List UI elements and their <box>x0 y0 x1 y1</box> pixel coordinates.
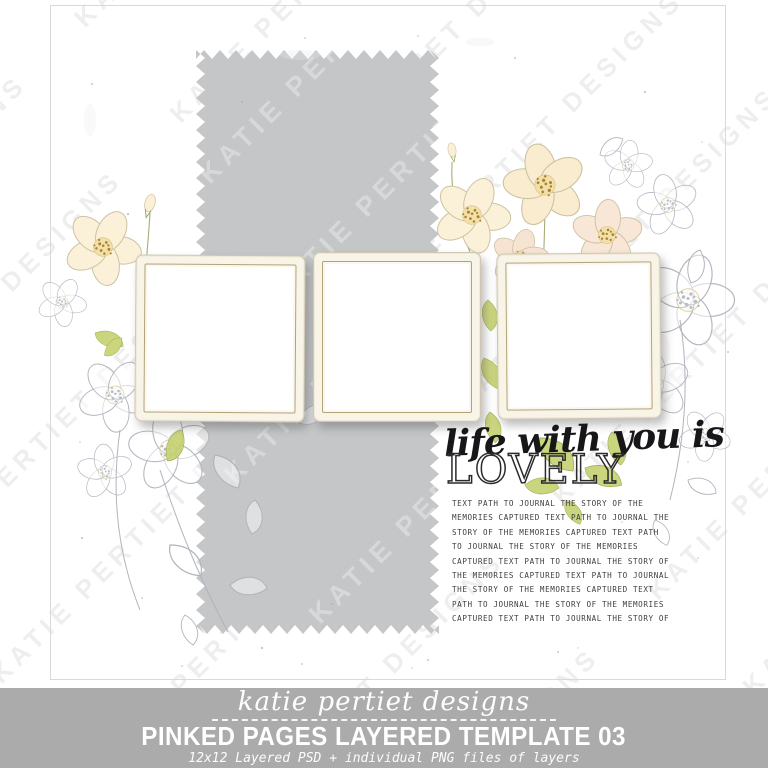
journal-line: TO JOURNAL THE STORY OF THE MEMORIES <box>452 540 668 554</box>
photo-frame-1 <box>134 254 305 422</box>
product-title: PINKED PAGES LAYERED TEMPLATE 03 <box>142 723 627 750</box>
photo-placeholder-2 <box>322 261 472 413</box>
photo-placeholder-1 <box>143 263 296 413</box>
journal-line: PATH TO JOURNAL THE STORY OF THE MEMORIE… <box>452 598 668 612</box>
journal-line: CAPTURED TEXT PATH TO JOURNAL THE STORY … <box>452 612 668 626</box>
watercolor-bud <box>447 142 458 162</box>
watercolor-bud <box>141 193 157 219</box>
journal-line: TEXT PATH TO JOURNAL THE STORY OF THE <box>452 497 668 511</box>
photo-placeholder-3 <box>505 261 652 410</box>
footer-brand-bar: katie pertiet designs PINKED PAGES LAYER… <box>0 688 768 768</box>
journal-line: THE STORY OF THE MEMORIES CAPTURED TEXT <box>452 583 668 597</box>
photo-frame-2 <box>313 252 481 422</box>
journal-text-block: TEXT PATH TO JOURNAL THE STORY OF THE ME… <box>452 497 668 627</box>
journal-line: MEMORIES CAPTURED TEXT PATH TO JOURNAL T… <box>452 511 668 525</box>
layout-title-caps: LOVELY <box>446 450 625 490</box>
brand-name-script: katie pertiet designs <box>212 689 556 721</box>
journal-line: CAPTURED TEXT PATH TO JOURNAL THE STORY … <box>452 555 668 569</box>
photo-frame-3 <box>496 252 661 419</box>
journal-line: STORY OF THE MEMORIES CAPTURED TEXT PATH <box>452 526 668 540</box>
product-preview-image: KATIE PERTIET DESIGNS KATIE PERTIET DESI… <box>0 0 768 768</box>
product-subtitle: 12x12 Layered PSD + individual PNG files… <box>188 752 579 765</box>
journal-line: THE MEMORIES CAPTURED TEXT PATH TO JOURN… <box>452 569 668 583</box>
